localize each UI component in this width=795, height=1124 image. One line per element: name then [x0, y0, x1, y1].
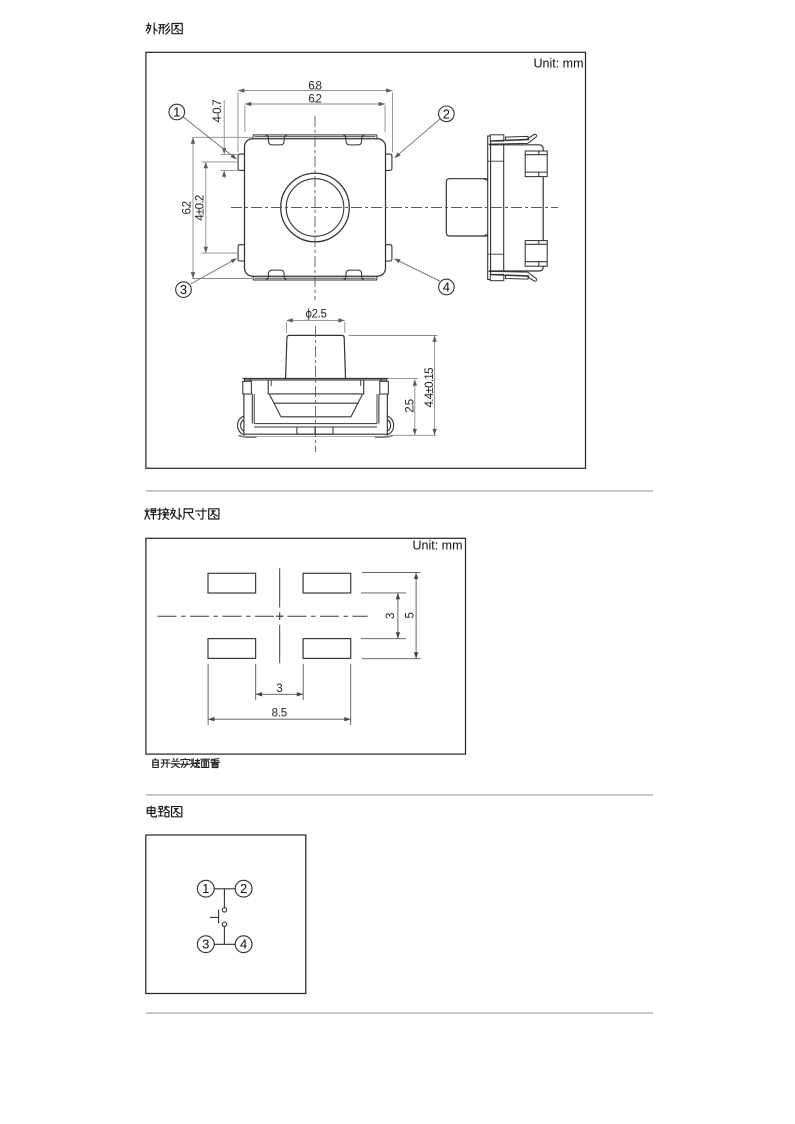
svg-text:6.8: 6.8	[308, 81, 322, 93]
svg-text:6.2: 6.2	[308, 94, 322, 106]
svg-text:Unit: mm: Unit: mm	[413, 539, 463, 553]
svg-text:4±0.2: 4±0.2	[195, 195, 207, 221]
svg-text:ϕ2.5: ϕ2.5	[305, 309, 327, 321]
svg-text:5: 5	[405, 612, 417, 618]
svg-text:3: 3	[202, 937, 209, 952]
svg-text:2.5: 2.5	[404, 399, 416, 413]
svg-text:2: 2	[240, 881, 247, 896]
svg-text:4.4±0.15: 4.4±0.15	[424, 368, 436, 408]
svg-text:1: 1	[173, 105, 180, 120]
svg-text:3: 3	[385, 613, 397, 619]
svg-text:4: 4	[443, 280, 450, 295]
svg-text:2: 2	[443, 106, 450, 121]
svg-text:6.2: 6.2	[182, 201, 194, 215]
svg-text:Unit: mm: Unit: mm	[534, 57, 584, 71]
svg-text:1: 1	[202, 881, 209, 896]
svg-text:3: 3	[276, 683, 282, 695]
svg-text:4-0.7: 4-0.7	[212, 100, 224, 123]
svg-text:3: 3	[180, 282, 187, 297]
svg-text:4: 4	[240, 937, 247, 952]
svg-text:8.5: 8.5	[272, 707, 288, 719]
